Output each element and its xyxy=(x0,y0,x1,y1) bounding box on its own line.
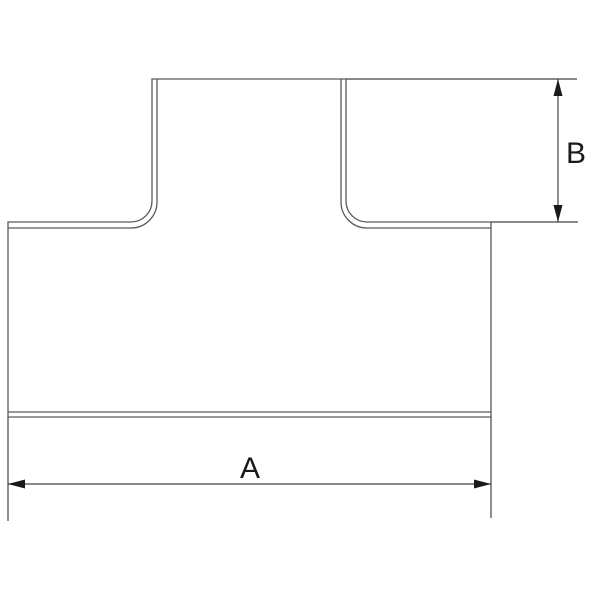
extension-lines-group xyxy=(8,79,578,521)
tee-inner-wall-right xyxy=(341,79,491,228)
dimension-b-group: B xyxy=(554,79,587,222)
arrowhead-a-left xyxy=(8,480,25,489)
dimension-label-a: A xyxy=(240,452,260,485)
arrowhead-a-right xyxy=(474,480,491,489)
tee-outer-outline xyxy=(8,79,491,417)
arrowhead-b-top xyxy=(554,79,563,96)
dimension-a-group: A xyxy=(8,452,491,489)
tee-fitting-drawing: A B xyxy=(0,0,600,600)
drawing-canvas: A B xyxy=(0,0,600,600)
tee-inner-wall-left xyxy=(8,79,157,228)
tee-outline-group xyxy=(8,79,491,417)
dimension-label-b: B xyxy=(566,137,586,170)
arrowhead-b-bottom xyxy=(554,205,563,222)
